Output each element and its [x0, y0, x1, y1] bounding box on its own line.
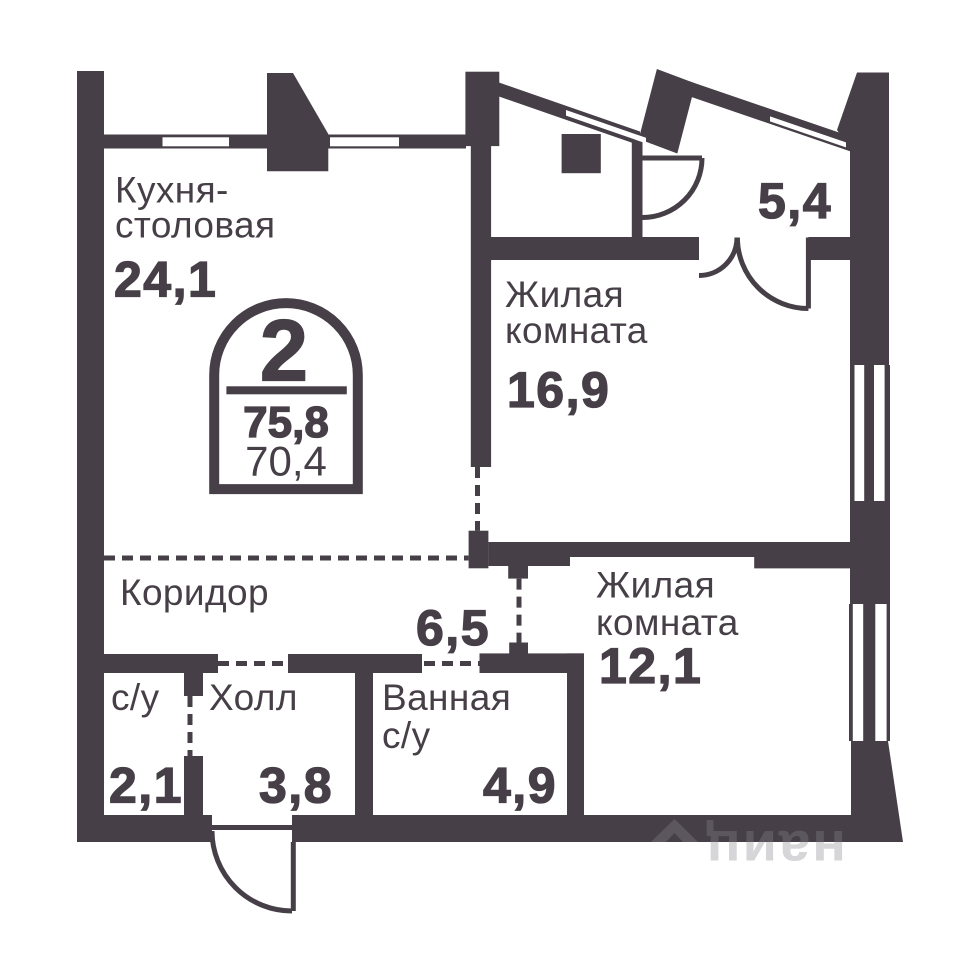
svg-text:12,1: 12,1 — [599, 638, 702, 694]
svg-text:с/у: с/у — [111, 677, 160, 718]
svg-text:Коридор: Коридор — [120, 572, 269, 613]
svg-text:2: 2 — [260, 303, 308, 400]
svg-text:24,1: 24,1 — [114, 252, 217, 308]
svg-text:Жилая: Жилая — [596, 565, 715, 606]
svg-text:Жилая: Жилая — [505, 274, 624, 315]
svg-text:столовая: столовая — [115, 205, 275, 246]
svg-text:3,8: 3,8 — [259, 758, 333, 814]
svg-text:70,4: 70,4 — [245, 438, 327, 485]
svg-text:комната: комната — [505, 310, 648, 351]
svg-text:5,4: 5,4 — [758, 173, 832, 229]
svg-text:Холл: Холл — [209, 677, 298, 718]
svg-text:с/у: с/у — [382, 715, 431, 756]
svg-text:Ванная: Ванная — [382, 677, 511, 718]
svg-text:комната: комната — [596, 602, 739, 643]
svg-text:4,9: 4,9 — [483, 758, 557, 814]
svg-text:16,9: 16,9 — [507, 362, 610, 418]
svg-text:наиц: наиц — [704, 819, 846, 882]
svg-text:6,5: 6,5 — [416, 600, 490, 656]
svg-text:2,1: 2,1 — [109, 758, 183, 814]
